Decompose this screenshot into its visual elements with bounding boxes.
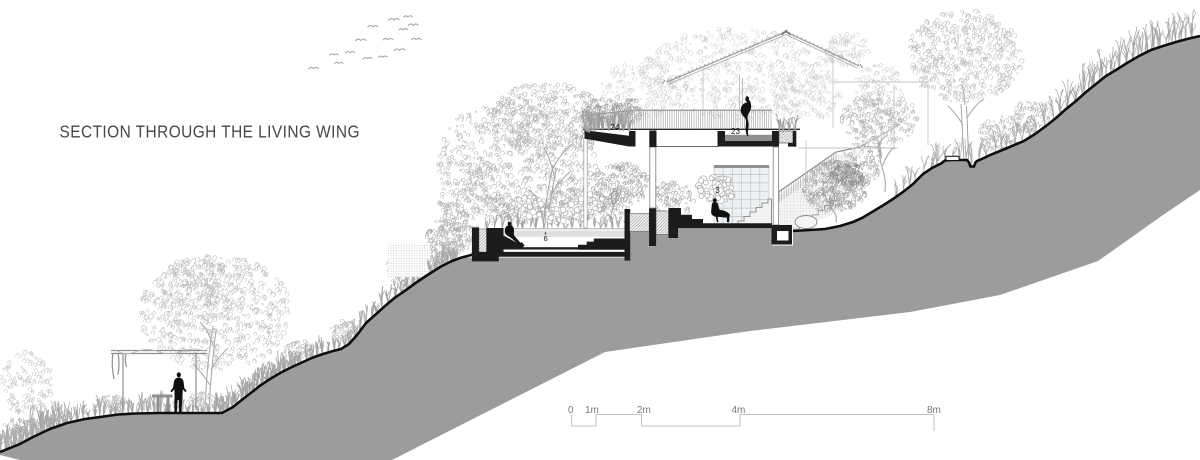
svg-text:8m: 8m — [927, 405, 941, 416]
svg-text:4m: 4m — [732, 405, 746, 416]
svg-text:24: 24 — [611, 123, 620, 132]
svg-text:3: 3 — [715, 186, 720, 195]
svg-text:6: 6 — [544, 234, 548, 243]
svg-text:SECTION THROUGH THE LIVING WIN: SECTION THROUGH THE LIVING WING — [60, 122, 360, 142]
svg-text:2m: 2m — [637, 405, 651, 416]
svg-text:23: 23 — [731, 127, 740, 136]
svg-text:0: 0 — [568, 405, 574, 416]
svg-text:1m: 1m — [585, 405, 599, 416]
